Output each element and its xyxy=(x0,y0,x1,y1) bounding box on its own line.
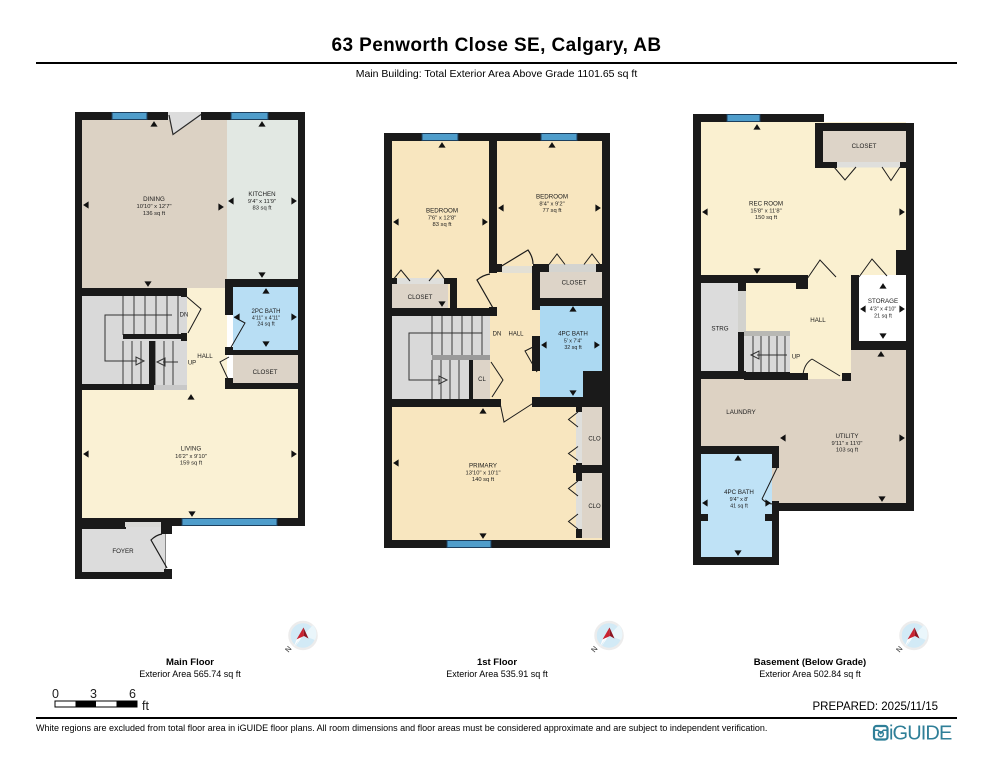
svg-text:8'4" x 9'2": 8'4" x 9'2" xyxy=(539,202,564,208)
svg-text:CLO: CLO xyxy=(588,437,601,443)
svg-text:DN: DN xyxy=(493,332,502,338)
svg-text:KITCHEN: KITCHEN xyxy=(248,191,275,198)
svg-text:41 sq ft: 41 sq ft xyxy=(730,504,748,510)
svg-text:LAUNDRY: LAUNDRY xyxy=(726,409,755,416)
svg-text:BEDROOM: BEDROOM xyxy=(536,194,568,201)
svg-text:HALL: HALL xyxy=(508,332,524,338)
svg-text:N: N xyxy=(283,644,293,654)
svg-text:CLOSET: CLOSET xyxy=(562,280,587,287)
svg-text:4PC BATH: 4PC BATH xyxy=(724,489,754,496)
svg-text:CLO: CLO xyxy=(588,504,601,510)
svg-text:140 sq ft: 140 sq ft xyxy=(472,477,495,483)
svg-text:9'4" x 11'9": 9'4" x 11'9" xyxy=(248,199,276,205)
svg-text:16'2" x 9'10": 16'2" x 9'10" xyxy=(175,454,207,460)
svg-text:CLOSET: CLOSET xyxy=(852,143,877,150)
svg-text:ft: ft xyxy=(142,699,149,713)
svg-text:UP: UP xyxy=(188,361,196,367)
svg-text:10'10" x 12'7": 10'10" x 12'7" xyxy=(136,204,171,210)
svg-text:3: 3 xyxy=(90,687,97,701)
svg-text:STORAGE: STORAGE xyxy=(868,298,898,305)
svg-text:BEDROOM: BEDROOM xyxy=(426,208,458,215)
svg-text:LIVING: LIVING xyxy=(181,446,201,453)
svg-text:136 sq ft: 136 sq ft xyxy=(143,211,166,217)
svg-text:7'6" x 12'8": 7'6" x 12'8" xyxy=(428,216,457,222)
svg-text:PRIMARY: PRIMARY xyxy=(469,463,497,470)
svg-text:5' x 7'4": 5' x 7'4" xyxy=(564,339,582,345)
svg-text:4'3" x 4'10": 4'3" x 4'10" xyxy=(870,307,897,313)
svg-text:CLOSET: CLOSET xyxy=(253,369,278,376)
svg-text:CL: CL xyxy=(478,377,486,383)
svg-text:159 sq ft: 159 sq ft xyxy=(180,461,203,467)
svg-text:77 sq ft: 77 sq ft xyxy=(542,208,561,214)
svg-text:83 sq ft: 83 sq ft xyxy=(252,206,271,212)
svg-text:FOYER: FOYER xyxy=(112,548,134,555)
svg-text:13'10" x 10'1": 13'10" x 10'1" xyxy=(465,471,500,477)
svg-text:DINING: DINING xyxy=(143,196,165,203)
svg-text:2PC BATH: 2PC BATH xyxy=(252,309,281,315)
svg-text:0: 0 xyxy=(52,687,59,701)
svg-text:UTILITY: UTILITY xyxy=(835,433,858,440)
svg-text:STRG: STRG xyxy=(711,326,728,333)
svg-text:6: 6 xyxy=(129,687,136,701)
svg-text:CLOSET: CLOSET xyxy=(408,294,433,301)
svg-text:24 sq ft: 24 sq ft xyxy=(257,322,275,328)
svg-text:HALL: HALL xyxy=(810,317,826,324)
svg-text:15'8" x 11'8": 15'8" x 11'8" xyxy=(750,209,781,215)
svg-text:32 sq ft: 32 sq ft xyxy=(564,345,582,351)
svg-text:21 sq ft: 21 sq ft xyxy=(874,314,892,320)
svg-text:REC ROOM: REC ROOM xyxy=(749,201,783,208)
svg-text:9'4" x 8': 9'4" x 8' xyxy=(730,497,749,503)
svg-text:150 sq ft: 150 sq ft xyxy=(755,215,778,221)
svg-text:HALL: HALL xyxy=(197,353,213,360)
svg-text:DN: DN xyxy=(180,313,189,319)
svg-text:83 sq ft: 83 sq ft xyxy=(432,222,451,228)
svg-text:UP: UP xyxy=(792,355,800,361)
svg-text:103 sq ft: 103 sq ft xyxy=(836,448,859,454)
svg-text:iGUIDE: iGUIDE xyxy=(889,723,952,745)
svg-text:4PC BATH: 4PC BATH xyxy=(558,331,588,338)
svg-text:9'11" x 11'0": 9'11" x 11'0" xyxy=(832,441,863,447)
